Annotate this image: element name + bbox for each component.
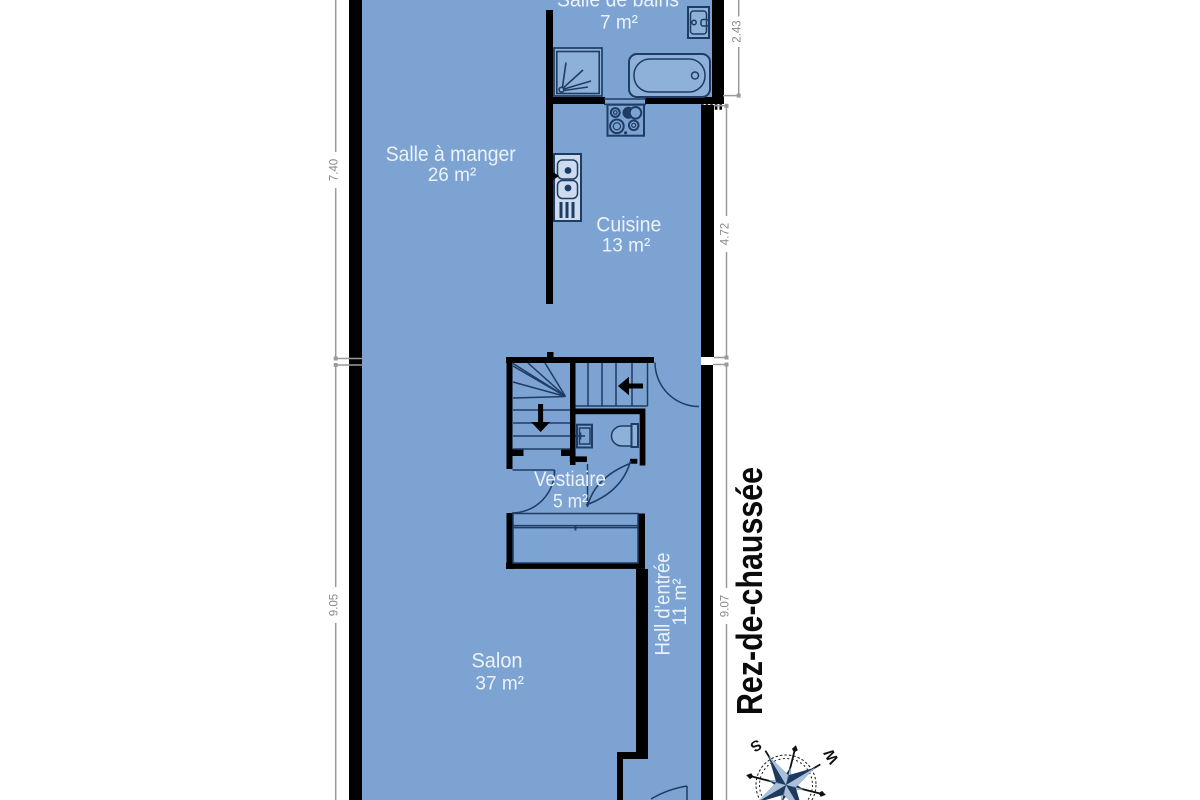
svg-text:Rez-de-chaussée: Rez-de-chaussée bbox=[729, 467, 770, 715]
svg-text:4.72: 4.72 bbox=[719, 223, 731, 245]
svg-text:Salon: Salon bbox=[472, 649, 523, 673]
svg-text:26 m²: 26 m² bbox=[428, 165, 477, 186]
svg-text:Salle à manger: Salle à manger bbox=[386, 142, 516, 166]
svg-text:7 m²: 7 m² bbox=[600, 12, 638, 33]
svg-text:9.05: 9.05 bbox=[329, 594, 341, 616]
svg-text:5 m²: 5 m² bbox=[553, 492, 588, 513]
svg-text:W: W bbox=[820, 745, 842, 767]
svg-text:S: S bbox=[747, 735, 764, 755]
svg-text:Vestiaire: Vestiaire bbox=[534, 467, 606, 491]
svg-text:13 m²: 13 m² bbox=[602, 235, 651, 256]
svg-text:11 m²: 11 m² bbox=[670, 578, 691, 625]
svg-text:Cuisine: Cuisine bbox=[596, 213, 661, 237]
svg-text:2.43: 2.43 bbox=[731, 20, 743, 42]
svg-text:Salle de bains: Salle de bains bbox=[557, 0, 679, 12]
svg-text:37 m²: 37 m² bbox=[475, 674, 524, 695]
svg-text:7.40: 7.40 bbox=[329, 159, 341, 181]
